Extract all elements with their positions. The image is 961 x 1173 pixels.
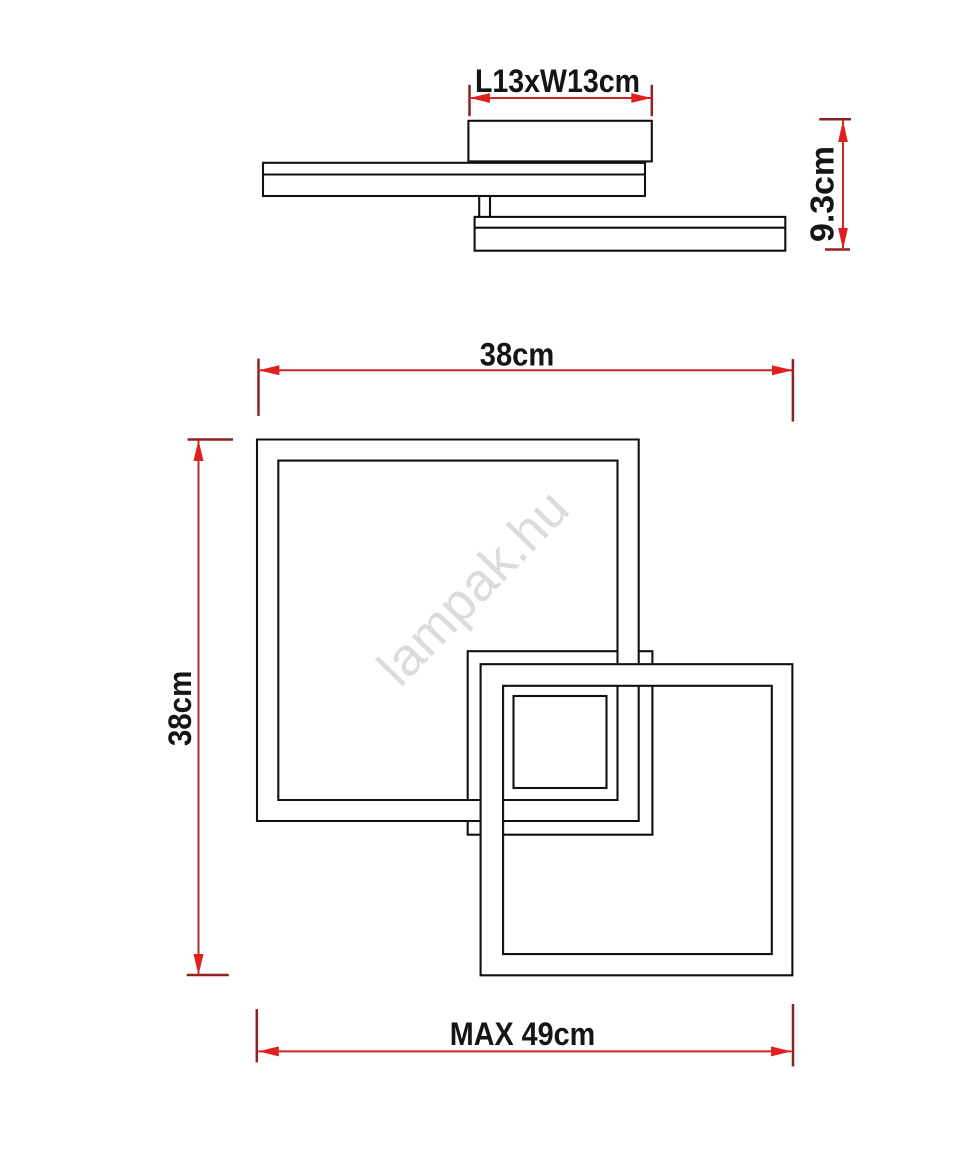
svg-text:38cm: 38cm bbox=[162, 671, 198, 747]
svg-text:38cm: 38cm bbox=[480, 337, 555, 373]
svg-text:MAX 49cm: MAX 49cm bbox=[450, 1016, 596, 1052]
svg-text:9.3cm: 9.3cm bbox=[804, 146, 841, 242]
svg-text:L13xW13cm: L13xW13cm bbox=[475, 63, 640, 99]
